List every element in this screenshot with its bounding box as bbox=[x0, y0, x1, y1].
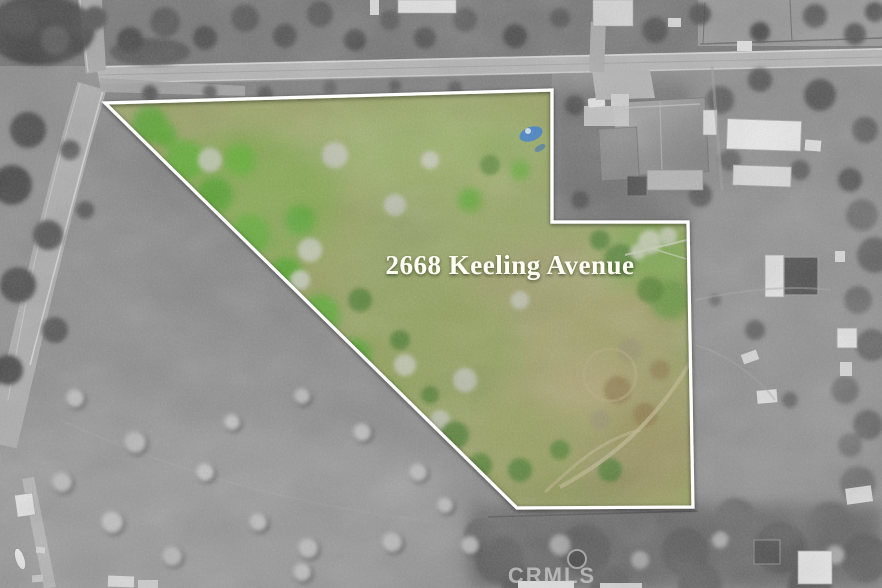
address-label: 2668 Keeling Avenue bbox=[386, 250, 635, 280]
watermark-label: CRMLS bbox=[508, 563, 596, 588]
aerial-photo: 2668 Keeling Avenue CRMLS bbox=[0, 0, 882, 588]
aerial-photo-canvas: 2668 Keeling Avenue CRMLS bbox=[0, 0, 882, 588]
